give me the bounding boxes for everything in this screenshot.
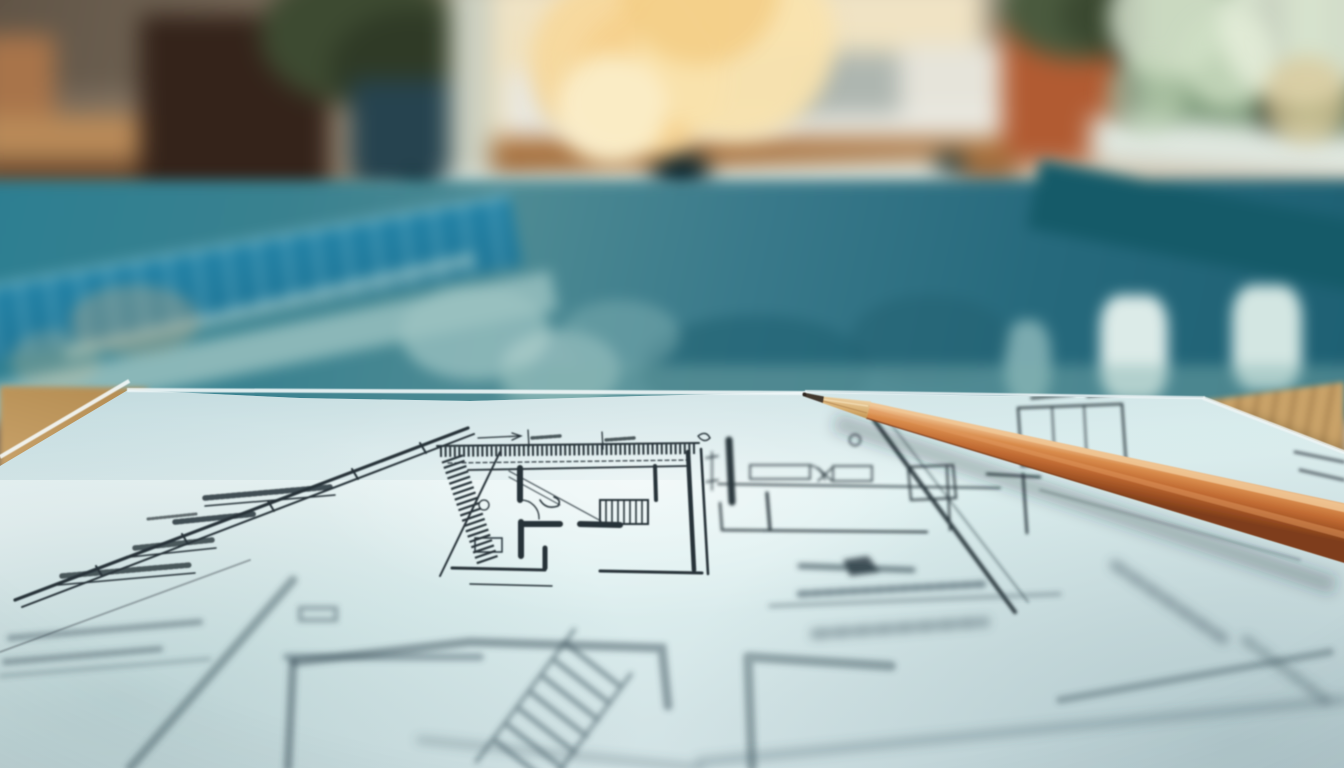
photo-indoor-pool-blueprints: Architectural blueprints by the indoor p… xyxy=(0,0,1344,768)
pencil-tip-point xyxy=(803,393,807,397)
pencil xyxy=(0,0,1344,768)
pencil-body-group xyxy=(803,393,1344,565)
